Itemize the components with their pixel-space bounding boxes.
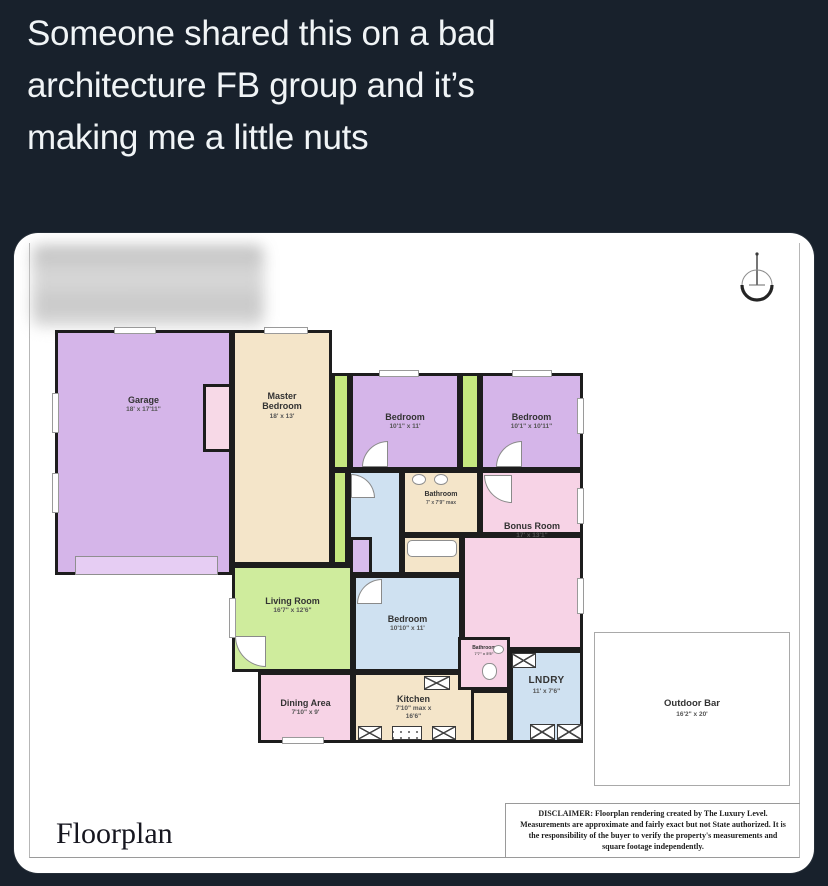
blurred-watermark	[32, 245, 264, 327]
floorplan-title: Floorplan	[56, 817, 173, 851]
room-dining: Dining Area 7'10" x 9'	[258, 672, 353, 743]
post-caption-line: architecture FB group and it’s	[27, 60, 807, 112]
bathtub	[407, 540, 457, 557]
closet-strip	[332, 470, 348, 565]
room-bonus-label: Bonus Room 17' x 13'1"	[482, 521, 582, 540]
washer-box	[530, 724, 555, 740]
stove	[392, 726, 422, 740]
closet-master	[203, 384, 232, 452]
garage-door	[75, 556, 218, 575]
window	[512, 370, 552, 377]
hall-closet	[350, 537, 372, 575]
room-outdoor-bar: Outdoor Bar 16'2" x 20'	[594, 632, 790, 786]
closet-strip	[332, 373, 350, 470]
sink	[493, 645, 504, 654]
window	[52, 473, 59, 513]
floorplan-image-card[interactable]: Garage 18' x 17'11" Master Bedroom 18' x…	[14, 233, 814, 873]
window	[577, 488, 584, 524]
post-caption-line: making me a little nuts	[27, 112, 807, 164]
room-bonus-lower	[462, 535, 583, 650]
window	[229, 598, 236, 638]
social-post-screenshot: { "post": { "lines": [ "Someone shared t…	[0, 0, 828, 886]
appliance-box	[358, 726, 382, 740]
disclaimer-box: DISCLAIMER: Floorplan rendering created …	[505, 803, 800, 858]
window	[577, 398, 584, 434]
window	[52, 393, 59, 433]
closet-strip	[460, 373, 480, 470]
window	[379, 370, 419, 377]
dryer-box	[557, 724, 582, 740]
post-caption: Someone shared this on a bad architectur…	[27, 8, 807, 164]
washer-box	[512, 653, 536, 668]
post-caption-line: Someone shared this on a bad	[27, 8, 807, 60]
room-master-bedroom: Master Bedroom 18' x 13'	[232, 330, 332, 565]
window	[114, 327, 156, 334]
north-compass-icon	[734, 249, 780, 312]
appliance-box	[424, 676, 450, 690]
room-garage: Garage 18' x 17'11"	[55, 330, 232, 575]
appliance-box	[432, 726, 456, 740]
room-bedroom-2: Bedroom 10'1" x 10'11"	[480, 373, 583, 470]
toilet	[482, 663, 497, 680]
window	[577, 578, 584, 614]
sink	[434, 474, 448, 485]
window	[264, 327, 308, 334]
window	[282, 737, 324, 744]
disclaimer-text: DISCLAIMER: Floorplan rendering created …	[506, 805, 800, 856]
sink	[412, 474, 426, 485]
